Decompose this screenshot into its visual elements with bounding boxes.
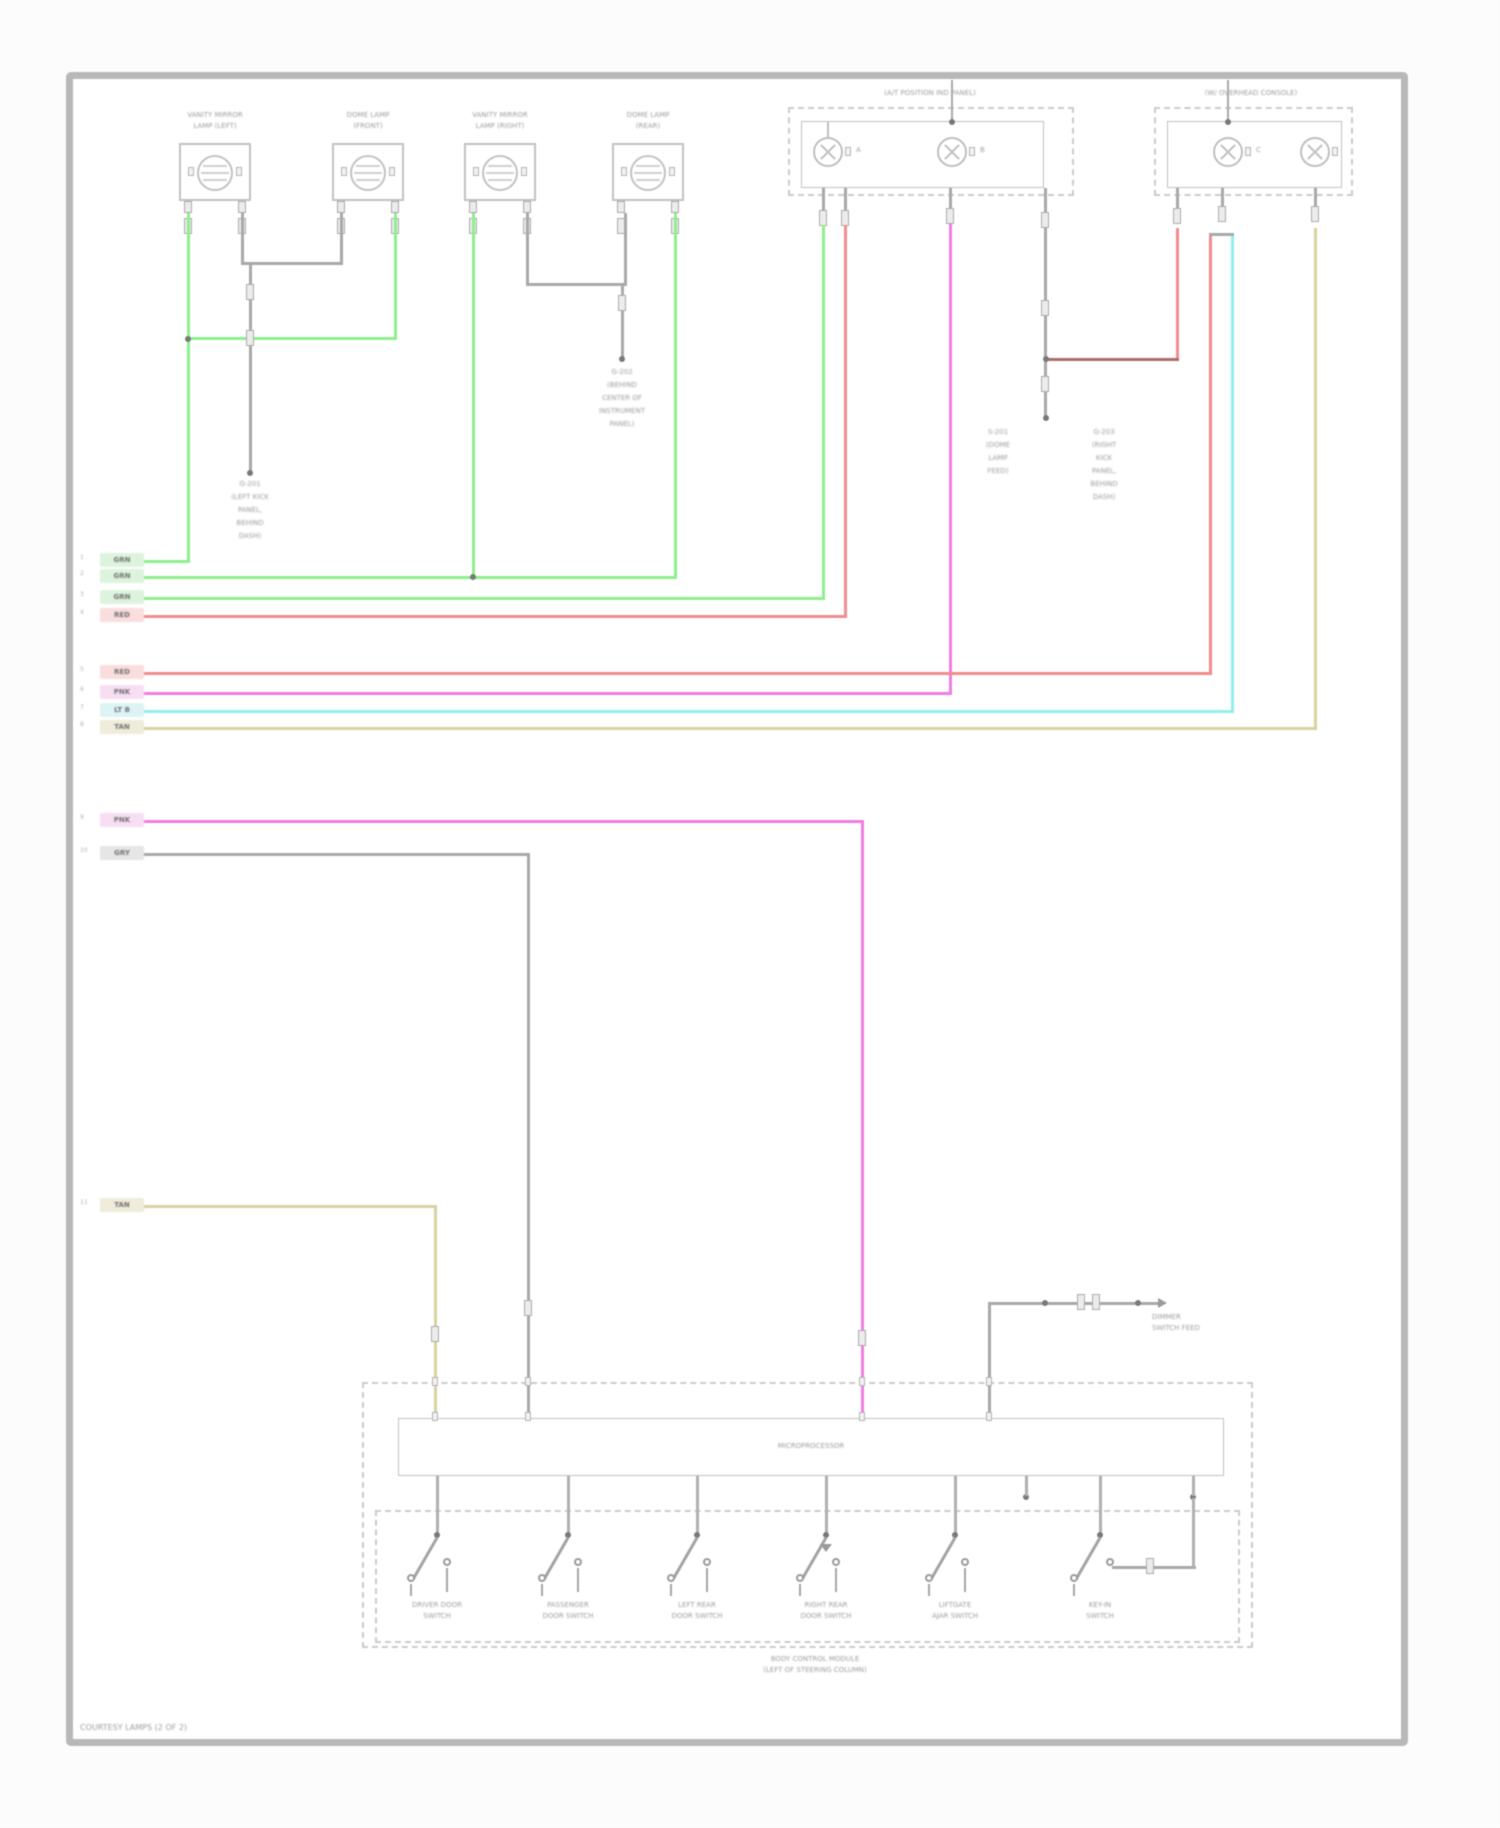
module-pin bbox=[432, 1412, 438, 1421]
switch-contact bbox=[1070, 1574, 1078, 1582]
inline-connector bbox=[246, 284, 254, 300]
switch-drop bbox=[1099, 1476, 1102, 1536]
panel1-bulb-a-icon bbox=[813, 137, 843, 167]
ground-mid-line: CENTER OF bbox=[557, 392, 687, 405]
stub-pin: 2 bbox=[80, 570, 84, 577]
inline-connector bbox=[841, 210, 849, 226]
lamp4-terminal bbox=[671, 201, 679, 213]
lamp1-label-line2: LAMP (LEFT) bbox=[165, 121, 265, 132]
lamp2-terminal bbox=[391, 201, 399, 213]
branch-drop bbox=[1192, 1498, 1195, 1568]
module-pin bbox=[525, 1412, 531, 1421]
inline-connector bbox=[618, 295, 626, 311]
stub-pin: 7 bbox=[80, 704, 84, 711]
wire-row8-tan bbox=[143, 727, 1317, 730]
module-pin bbox=[986, 1377, 992, 1386]
wire-gray bbox=[340, 213, 343, 264]
ground-right-line: KICK bbox=[1039, 452, 1169, 465]
switch-drop bbox=[696, 1476, 699, 1536]
switch4-label2: DOOR SWITCH bbox=[766, 1611, 886, 1622]
switch-drop bbox=[954, 1476, 957, 1536]
module-caption-line1: BODY CONTROL MODULE bbox=[655, 1654, 975, 1665]
ground-right-line: DASH) bbox=[1039, 491, 1169, 504]
ground-mid-stack: G-202 (BEHIND CENTER OF INSTRUMENT PANEL… bbox=[557, 366, 687, 431]
ground-right-line: G-203 bbox=[1039, 426, 1169, 439]
stub-chip: PNK bbox=[100, 685, 144, 699]
wire-row3-green bbox=[143, 597, 825, 600]
lamp4-label-line2: (REAR) bbox=[598, 121, 698, 132]
stem bbox=[822, 188, 825, 210]
switch-stub bbox=[577, 1568, 579, 1592]
ground-left-stack: G-201 (LEFT KICK PANEL, BEHIND DASH) bbox=[185, 478, 315, 543]
stub-pin: 1 bbox=[80, 554, 84, 561]
switch-stub bbox=[799, 1584, 801, 1596]
switch4-label1: RIGHT REAR bbox=[766, 1600, 886, 1611]
lamp4-terminal bbox=[617, 201, 625, 213]
lamp3-nub bbox=[473, 167, 479, 176]
wire-row7-cyan bbox=[143, 710, 1234, 713]
lamp4-nub bbox=[669, 167, 675, 176]
lamp3-label-line1: VANITY MIRROR bbox=[450, 110, 550, 121]
panel2-bulb-b-nub bbox=[1332, 147, 1338, 156]
stub-chip: GRN bbox=[100, 590, 144, 604]
lamp1-nub bbox=[188, 167, 194, 176]
lamp4-label-line1: DOME LAMP bbox=[598, 110, 698, 121]
lamp2-hatch bbox=[356, 165, 380, 167]
module-caption-line2: (LEFT OF STEERING COLUMN) bbox=[655, 1665, 975, 1676]
ground-left-line: PANEL, bbox=[185, 504, 315, 517]
wire-row10-gray bbox=[143, 853, 530, 856]
module-pin bbox=[986, 1412, 992, 1421]
wire-row9-pink bbox=[143, 820, 864, 823]
stub-pin: 5 bbox=[80, 666, 84, 673]
junction-dot bbox=[1135, 1300, 1141, 1306]
lamp3-hatch bbox=[488, 179, 512, 181]
stub-chip: PNK bbox=[100, 813, 144, 827]
panel1-bulb-b-label: B bbox=[980, 145, 1000, 156]
panel2-feed-wire bbox=[1227, 80, 1229, 123]
wire-gray bbox=[526, 213, 529, 285]
junction-dot bbox=[949, 119, 955, 125]
module-pin bbox=[525, 1377, 531, 1386]
lamp4-hatch bbox=[636, 179, 660, 181]
lamp1-hatch bbox=[203, 179, 227, 181]
lamp1-nub bbox=[236, 167, 242, 176]
lamp1-terminal bbox=[184, 201, 192, 213]
ground-left-line: DASH) bbox=[185, 530, 315, 543]
wire-red-panel2-left bbox=[1176, 228, 1179, 360]
wire-split-join bbox=[1209, 233, 1234, 236]
lamp1-hatch bbox=[201, 172, 229, 174]
stub-chip: GRY bbox=[100, 846, 144, 860]
lamp3-nub bbox=[521, 167, 527, 176]
lamp3-hatch bbox=[486, 172, 514, 174]
stub-chip: LT B bbox=[100, 703, 144, 717]
stub-chip: TAN bbox=[100, 720, 144, 734]
stub-chip: RED bbox=[100, 665, 144, 679]
inline-connector bbox=[858, 1330, 866, 1346]
panel1-feed-wire bbox=[951, 80, 953, 123]
panel1-bulb-b-icon bbox=[937, 137, 967, 167]
switch5-label1: LIFTGATE bbox=[895, 1600, 1015, 1611]
wire-row11-tan bbox=[143, 1205, 437, 1208]
switch-stub bbox=[410, 1584, 412, 1596]
wire-row2-green bbox=[143, 576, 677, 579]
switch5-label2: AJAR SWITCH bbox=[895, 1611, 1015, 1622]
stub-pin: 11 bbox=[80, 1199, 88, 1206]
lamp1-hatch bbox=[203, 165, 227, 167]
inline-connector bbox=[1041, 376, 1049, 392]
lamp2-nub bbox=[341, 167, 347, 176]
inline-connector bbox=[946, 208, 954, 224]
lamp3-terminal bbox=[469, 201, 477, 213]
switch-contact bbox=[925, 1574, 933, 1582]
wire-row6-magenta bbox=[143, 692, 952, 695]
ground-mid-line: G-202 bbox=[557, 366, 687, 379]
ground-mid-line: (BEHIND bbox=[557, 379, 687, 392]
inline-connector bbox=[1146, 1558, 1154, 1574]
switch-contact bbox=[961, 1558, 969, 1566]
panel1-bulb-b-nub bbox=[969, 147, 975, 156]
inline-connector bbox=[1218, 206, 1226, 222]
wire-pink-long bbox=[861, 820, 864, 1418]
lamp4-nub bbox=[621, 167, 627, 176]
wire-cyan-panel2 bbox=[1231, 235, 1234, 713]
stub-pin: 8 bbox=[80, 721, 84, 728]
switch-stub bbox=[541, 1584, 543, 1596]
ground-mid-line: PANEL) bbox=[557, 418, 687, 431]
junction-dot bbox=[247, 470, 253, 476]
wire-gray bbox=[624, 213, 627, 285]
switch1-label2: SWITCH bbox=[377, 1611, 497, 1622]
wire-gray-long bbox=[527, 853, 530, 1418]
stub-pin: 6 bbox=[80, 686, 84, 693]
lamp4-hatch bbox=[636, 165, 660, 167]
switch-contact bbox=[667, 1574, 675, 1582]
lamp2-hatch bbox=[356, 179, 380, 181]
panel2-bulb-a-icon bbox=[1213, 137, 1243, 167]
inline-connector bbox=[431, 1326, 439, 1342]
footer-title: COURTESY LAMPS (2 OF 2) bbox=[80, 1722, 320, 1733]
ground-right-line: BEHIND bbox=[1039, 478, 1169, 491]
lamp2-label-line2: (FRONT) bbox=[318, 121, 418, 132]
wire-row4-red bbox=[143, 615, 847, 618]
switch6-label1: KEY-IN bbox=[1040, 1600, 1160, 1611]
junction-dot bbox=[1043, 356, 1049, 362]
module-pin bbox=[432, 1377, 438, 1386]
switch-contact bbox=[796, 1574, 804, 1582]
panel1-bulb-a-nub bbox=[845, 147, 851, 156]
junction-dot bbox=[1042, 1300, 1048, 1306]
switch-arrow-icon bbox=[820, 1544, 832, 1552]
inline-connector bbox=[1092, 1294, 1100, 1310]
inline-connector bbox=[1077, 1294, 1085, 1310]
ground-left-line: G-201 bbox=[185, 478, 315, 491]
switch2-label1: PASSENGER bbox=[508, 1600, 628, 1611]
wire-gray-jog1 bbox=[241, 262, 343, 265]
component-label-line1: DIMMER bbox=[1152, 1312, 1282, 1323]
junction-dot bbox=[470, 574, 476, 580]
switch-contact bbox=[574, 1558, 582, 1566]
wire-arrow-icon bbox=[1158, 1298, 1167, 1308]
wire-row1-green bbox=[143, 560, 190, 563]
component-label-line2: SWITCH FEED bbox=[1152, 1323, 1282, 1334]
stub-pin: 10 bbox=[80, 847, 88, 854]
lamp2-nub bbox=[389, 167, 395, 176]
inline-connector bbox=[524, 1300, 532, 1316]
wire-row5-red bbox=[143, 672, 1212, 675]
switch-stub bbox=[670, 1584, 672, 1596]
inline-connector bbox=[1311, 206, 1319, 222]
stub-chip: RED bbox=[100, 608, 144, 622]
wire-green-l3 bbox=[472, 213, 475, 578]
stem bbox=[1314, 188, 1317, 208]
stub-pin: 3 bbox=[80, 591, 84, 598]
module-switch-dashed-box bbox=[375, 1510, 1240, 1643]
wire-green-panel1 bbox=[822, 225, 825, 600]
panel2-label: (W/ OVERHEAD CONSOLE) bbox=[1151, 88, 1351, 99]
lamp3-label-line2: LAMP (RIGHT) bbox=[450, 121, 550, 132]
switch-contact bbox=[703, 1558, 711, 1566]
switch-stub bbox=[1073, 1584, 1075, 1596]
stub-chip: TAN bbox=[100, 1198, 144, 1212]
switch3-label1: LEFT REAR bbox=[637, 1600, 757, 1611]
inline-connector bbox=[819, 210, 827, 226]
module-pin bbox=[859, 1412, 865, 1421]
switch2-label2: DOOR SWITCH bbox=[508, 1611, 628, 1622]
junction-dot bbox=[1043, 415, 1049, 421]
switch-stub bbox=[446, 1568, 448, 1592]
panel1-stem bbox=[827, 122, 829, 137]
switch-contact bbox=[538, 1574, 546, 1582]
lamp2-hatch bbox=[354, 172, 382, 174]
switch-stub bbox=[964, 1568, 966, 1592]
ground-left-line: BEHIND bbox=[185, 517, 315, 530]
panel1-bulb-a-label: A bbox=[856, 145, 876, 156]
switch-drop bbox=[567, 1476, 570, 1536]
stub-pin: 9 bbox=[80, 814, 84, 821]
stub-pin: 4 bbox=[80, 609, 84, 616]
wire-gray bbox=[241, 213, 244, 264]
switch-contact bbox=[832, 1558, 840, 1566]
lamp2-label-line1: DOME LAMP bbox=[318, 110, 418, 121]
module-inner-label: MICROPROCESSOR bbox=[711, 1441, 911, 1452]
wire-tan-panel2 bbox=[1314, 228, 1317, 730]
junction-dot bbox=[1225, 119, 1231, 125]
wiring-diagram-page: VANITY MIRROR LAMP (LEFT) DOME LAMP (FRO… bbox=[0, 0, 1500, 1828]
module-pin bbox=[859, 1377, 865, 1386]
wire-gray-jog2 bbox=[526, 283, 627, 286]
panel2-bulb-b-icon bbox=[1300, 137, 1330, 167]
wire-green-l2 bbox=[394, 213, 397, 337]
switch-contact bbox=[407, 1574, 415, 1582]
stub-chip: GRN bbox=[100, 569, 144, 583]
stem bbox=[1221, 188, 1224, 208]
wire-green-jog bbox=[188, 337, 397, 340]
branch-drop bbox=[1025, 1476, 1028, 1496]
inline-connector bbox=[246, 330, 254, 346]
stem bbox=[844, 188, 847, 210]
lamp1-label-line1: VANITY MIRROR bbox=[165, 110, 265, 121]
panel1-label: (A/T POSITION IND PANEL) bbox=[830, 88, 1030, 99]
switch3-label2: DOOR SWITCH bbox=[637, 1611, 757, 1622]
switch6-label2: SWITCH bbox=[1040, 1611, 1160, 1622]
inline-connector bbox=[1041, 300, 1049, 316]
switch-stub bbox=[835, 1568, 837, 1592]
stub-chip: GRN bbox=[100, 553, 144, 567]
switch-contact bbox=[1106, 1558, 1114, 1566]
inline-connector bbox=[1041, 212, 1049, 228]
wire-darkred-jog bbox=[1046, 358, 1179, 361]
junction-dot bbox=[185, 336, 191, 342]
ground-left-line: (LEFT KICK bbox=[185, 491, 315, 504]
branch-drop bbox=[1192, 1476, 1195, 1496]
switch-stub bbox=[928, 1584, 930, 1596]
wire-red-panel1 bbox=[844, 225, 847, 618]
panel2-bulb-a-label: C bbox=[1256, 145, 1276, 156]
switch1-label1: DRIVER DOOR bbox=[377, 1600, 497, 1611]
wire-red-panel2 bbox=[1209, 235, 1212, 675]
lamp3-hatch bbox=[488, 165, 512, 167]
switch-drop bbox=[825, 1476, 828, 1536]
stem bbox=[949, 188, 952, 208]
inline-connector bbox=[1173, 208, 1181, 224]
ground-right-line: PANEL, bbox=[1039, 465, 1169, 478]
lamp1-terminal bbox=[238, 201, 246, 213]
ground-right-line: (RIGHT bbox=[1039, 439, 1169, 452]
panel2-bulb-a-nub bbox=[1245, 147, 1251, 156]
lamp4-hatch bbox=[634, 172, 662, 174]
ground-mid-line: INSTRUMENT bbox=[557, 405, 687, 418]
switch-stub bbox=[706, 1568, 708, 1592]
switch-drop bbox=[436, 1476, 439, 1536]
junction-dot bbox=[619, 356, 625, 362]
lamp2-terminal bbox=[337, 201, 345, 213]
ground-right-stack: G-203 (RIGHT KICK PANEL, BEHIND DASH) bbox=[1039, 426, 1169, 504]
lamp3-terminal bbox=[523, 201, 531, 213]
switch-contact bbox=[443, 1558, 451, 1566]
